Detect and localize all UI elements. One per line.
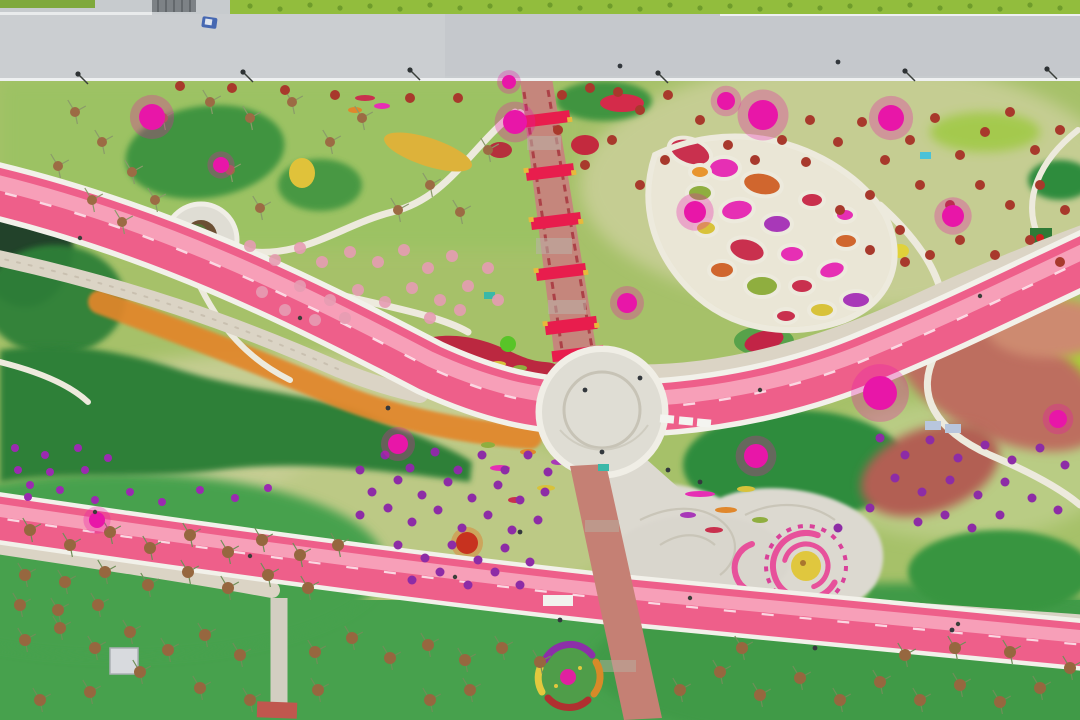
aerial-park-photo: [0, 0, 1080, 720]
hedge: [230, 0, 1080, 14]
curb-line: [0, 78, 1080, 81]
mandala-center: [560, 669, 576, 685]
promenade: [0, 0, 1080, 81]
hedge-top-left: [0, 0, 95, 8]
tent: [660, 414, 675, 423]
banner-sign: [543, 595, 573, 606]
flower-mandala: [538, 644, 600, 707]
blue-tent: [925, 421, 941, 430]
bright-green-tree: [500, 336, 516, 352]
park-scene-canvas: [0, 0, 1080, 720]
red-flower-circle: [456, 532, 478, 554]
yellow-patch: [289, 158, 315, 188]
spiral-center-flower-bed: [791, 551, 821, 581]
